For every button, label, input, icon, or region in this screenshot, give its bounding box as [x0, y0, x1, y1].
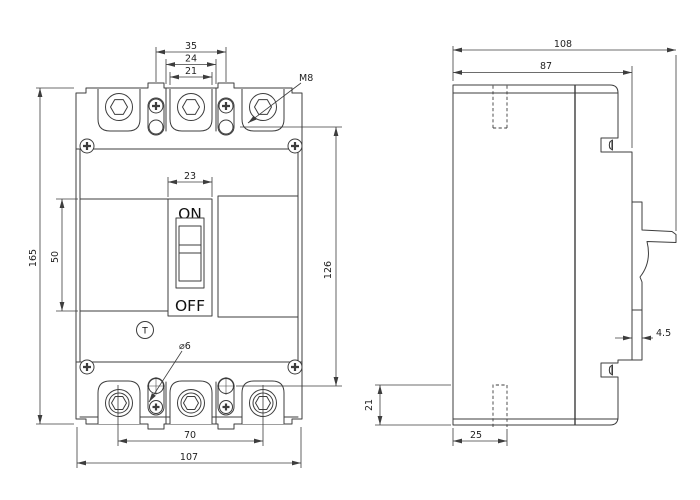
svg-text:70: 70: [184, 430, 196, 441]
cover-screw-top-right: [288, 139, 302, 153]
dimension-87: 87: [453, 61, 632, 148]
mounting-slot-top-right: [218, 98, 234, 135]
svg-text:23: 23: [184, 171, 196, 182]
side-screw-bottom: [609, 365, 612, 375]
svg-text:24: 24: [185, 54, 197, 65]
side-profile-outline: [453, 85, 676, 425]
dimension-23: 23: [168, 171, 212, 197]
terminal-pad-top-middle: [166, 88, 216, 131]
mounting-hole-slot-top: [493, 85, 507, 128]
test-button-label: T: [141, 327, 148, 337]
dimension-108: 108: [453, 39, 676, 231]
front-view: ON OFF T: [28, 41, 342, 468]
dimension-21-side: 21: [364, 385, 451, 425]
cover-screw-bottom-right: [288, 360, 302, 374]
cover-screw-top-left: [80, 139, 94, 153]
thread-size-label: M8: [299, 73, 313, 84]
pole-cover-right: [218, 196, 298, 317]
trip-test-button[interactable]: T: [137, 322, 154, 339]
dimension-4-5: 4.5: [615, 328, 671, 339]
mounting-hole-slot-bottom: [493, 385, 507, 427]
side-inner-edges: [453, 93, 642, 419]
terminal-pad-bottom-middle: [166, 381, 216, 424]
off-label: OFF: [175, 297, 205, 315]
terminal-pad-top-right: [242, 89, 284, 131]
svg-text:4.5: 4.5: [656, 328, 671, 339]
svg-text:126: 126: [323, 261, 334, 279]
technical-drawing: ON OFF T: [0, 0, 700, 500]
toggle-switch[interactable]: ON OFF: [168, 199, 212, 316]
svg-text:21: 21: [364, 399, 375, 411]
side-screw-top: [609, 140, 612, 150]
svg-text:25: 25: [470, 430, 482, 441]
svg-text:21: 21: [185, 66, 197, 77]
drawing-canvas: ON OFF T: [0, 0, 700, 500]
svg-text:87: 87: [540, 61, 552, 72]
svg-text:107: 107: [180, 452, 198, 463]
svg-text:50: 50: [50, 251, 61, 263]
side-view: 108 87 4.5 21 25: [364, 39, 676, 446]
mounting-slot-top-left: [148, 98, 164, 135]
cover-screw-bottom-left: [80, 360, 94, 374]
svg-text:35: 35: [185, 41, 197, 52]
hole-diameter-label: ⌀6: [179, 341, 191, 352]
dimension-50: 50: [50, 199, 78, 311]
mounting-slot-bottom-left: [147, 377, 165, 415]
terminal-pad-bottom-left: [98, 381, 140, 424]
dimension-25: 25: [453, 428, 507, 446]
dimension-21-front: 21: [170, 66, 212, 85]
svg-text:108: 108: [554, 39, 572, 50]
svg-text:165: 165: [28, 249, 39, 267]
mounting-slot-bottom-right: [217, 377, 235, 415]
terminal-pad-top-left: [98, 89, 140, 131]
pole-cover-left: [80, 199, 168, 311]
